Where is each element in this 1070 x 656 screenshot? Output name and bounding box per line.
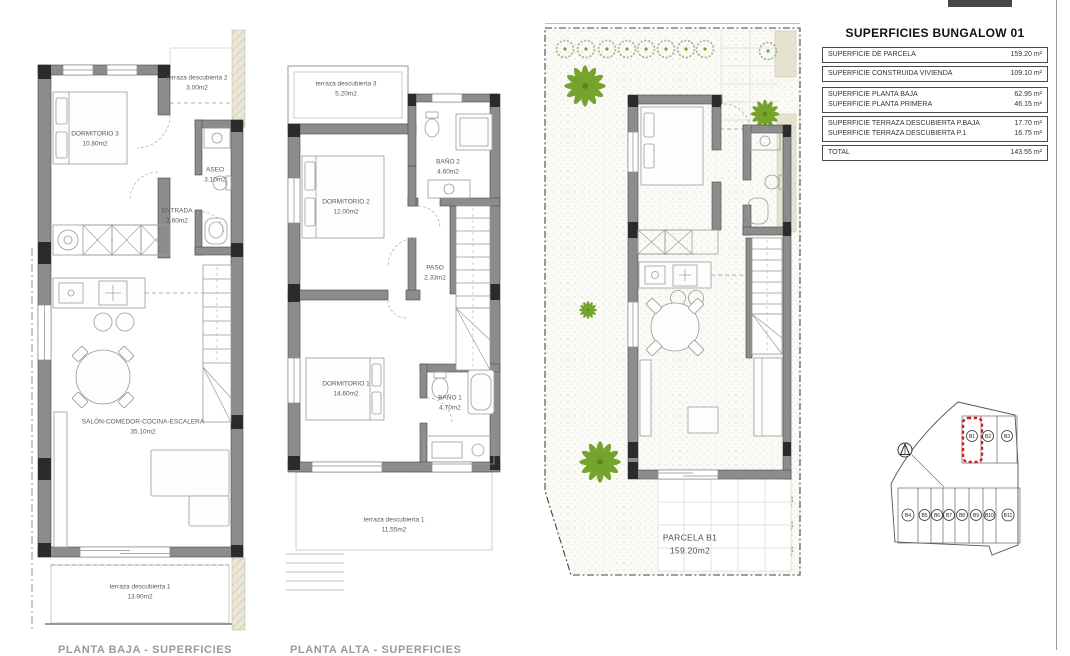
room-label-dormitorio-2: DORMITORIO 2 12.00m2 <box>322 198 370 219</box>
svg-text:B7: B7 <box>946 513 952 519</box>
plot-marker-b5: B5 <box>919 510 930 521</box>
svg-text:B9: B9 <box>973 513 979 519</box>
floor-plan-planta-baja: DORMITORIO 3 10.80m2 terraza descubierta… <box>25 20 250 638</box>
svg-text:B10: B10 <box>985 513 994 519</box>
plot-marker-b1: B1 <box>967 431 978 442</box>
svg-text:B8: B8 <box>959 513 965 519</box>
svg-text:B5: B5 <box>921 513 927 519</box>
plot-marker-b3: B3 <box>1002 431 1013 442</box>
room-label-dormitorio-3: DORMITORIO 3 10.80m2 <box>71 130 119 151</box>
key-plan: B1 B2 B3 B4 B5 B6 B7 B8 B9 B10 B11 <box>878 398 1048 568</box>
room-label-paso: PASO 2.33m2 <box>424 264 446 285</box>
svg-text:B3: B3 <box>1004 434 1010 440</box>
areas-table: SUPERFICIES BUNGALOW 01 SUPERFICIE DE PA… <box>822 26 1048 164</box>
parcel-label: PARCELA B1 159.20m2 <box>663 531 717 557</box>
sheet-right-border <box>1056 0 1057 650</box>
logo-fragment <box>948 0 1012 7</box>
areas-rows-plantas: SUPERFICIE PLANTA BAJA 62.95 m² SUPERFIC… <box>822 87 1048 113</box>
plot-marker-b6: B6 <box>932 510 943 521</box>
room-label-terraza-descubierta-2: terraza descubierta 2 3.00m2 <box>166 74 227 95</box>
room-label-terraza-descubierta-1-p1: terraza descubierta 1 11.55m2 <box>363 516 424 537</box>
svg-text:B1: B1 <box>969 434 975 440</box>
plot-marker-b10: B10 <box>984 510 995 521</box>
areas-row-parcela: SUPERFICIE DE PARCELA 159.20 m² <box>822 47 1048 63</box>
caption-planta-alta: PLANTA ALTA - SUPERFICIES <box>290 644 461 656</box>
room-label-aseo: ASEO 3.10m2 <box>204 166 226 187</box>
site-plan-drawing <box>538 22 806 584</box>
floor-plan-planta-alta: terraza descubierta 3 5.20m2 DORMITORIO … <box>282 58 504 606</box>
room-label-entrada: ENTRADA 2.60m2 <box>161 207 192 228</box>
plot-marker-b9: B9 <box>971 510 982 521</box>
areas-row-construida: SUPERFICIE CONSTRUIDA VIVIENDA 109.10 m² <box>822 66 1048 82</box>
plot-marker-b8: B8 <box>957 510 968 521</box>
caption-planta-baja: PLANTA BAJA - SUPERFICIES <box>58 644 232 656</box>
drawing-sheet: DORMITORIO 3 10.80m2 terraza descubierta… <box>0 0 1070 650</box>
room-label-dormitorio-1: DORMITORIO 1 14.60m2 <box>322 380 370 401</box>
svg-text:B11: B11 <box>1004 513 1013 519</box>
room-label-bano-2: BAÑO 2 4.60m2 <box>436 158 460 179</box>
svg-text:B2: B2 <box>985 434 991 440</box>
svg-text:B4: B4 <box>905 513 911 519</box>
room-label-terraza-descubierta-3: terraza descubierta 3 5.20m2 <box>315 80 376 101</box>
key-plan-drawing: B1 B2 B3 B4 B5 B6 B7 B8 B9 B10 B11 <box>878 398 1048 568</box>
site-plan-parcela: PARCELA B1 159.20m2 <box>538 22 806 584</box>
room-label-salon: SALÓN-COMEDOR-COCINA-ESCALERA 35.10m2 <box>82 418 204 439</box>
areas-row-total: TOTAL 143.55 m² <box>822 145 1048 161</box>
plot-marker-b2: B2 <box>983 431 994 442</box>
areas-rows-terrazas: SUPERFICIE TERRAZA DESCUBIERTA P.BAJA 17… <box>822 116 1048 142</box>
north-arrow-icon <box>898 443 912 457</box>
plot-marker-b7: B7 <box>944 510 955 521</box>
areas-table-title: SUPERFICIES BUNGALOW 01 <box>822 26 1048 40</box>
planta-baja-drawing <box>25 20 250 638</box>
plot-marker-b4: B4 <box>902 509 914 521</box>
room-label-terraza-descubierta-1: terraza descubierta 1 13.90m2 <box>109 583 170 604</box>
plot-marker-b11: B11 <box>1002 509 1014 521</box>
svg-text:B6: B6 <box>934 513 940 519</box>
room-label-bano-1: BAÑO 1 4.70m2 <box>438 394 462 415</box>
